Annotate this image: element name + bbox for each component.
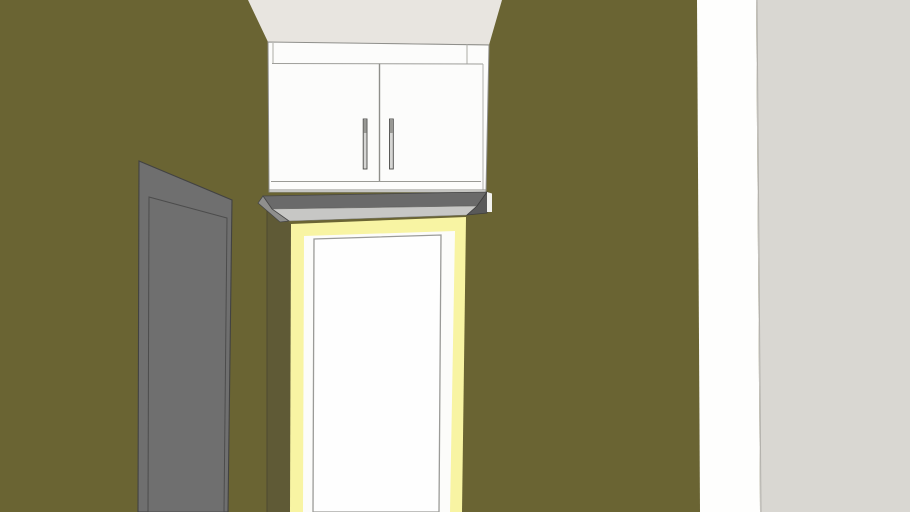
cabinet-top-rail-line: [272, 64, 483, 65]
ceiling: [248, 0, 502, 45]
wall-far-right-gray: [756, 0, 910, 512]
model-viewport[interactable]: [0, 0, 910, 512]
doorway-jamb-shadow: [267, 204, 291, 512]
left-door-gray: [138, 161, 232, 512]
cabinet-handle-left-cap: [364, 120, 367, 133]
cabinet-body: [268, 42, 489, 192]
cabinet-handle-right-cap: [390, 120, 393, 133]
shelf-right-white-sliver: [487, 192, 492, 212]
doorway-door-panel: [313, 235, 441, 512]
scene-svg: [0, 0, 910, 512]
wall-right-white-strip: [697, 0, 760, 512]
